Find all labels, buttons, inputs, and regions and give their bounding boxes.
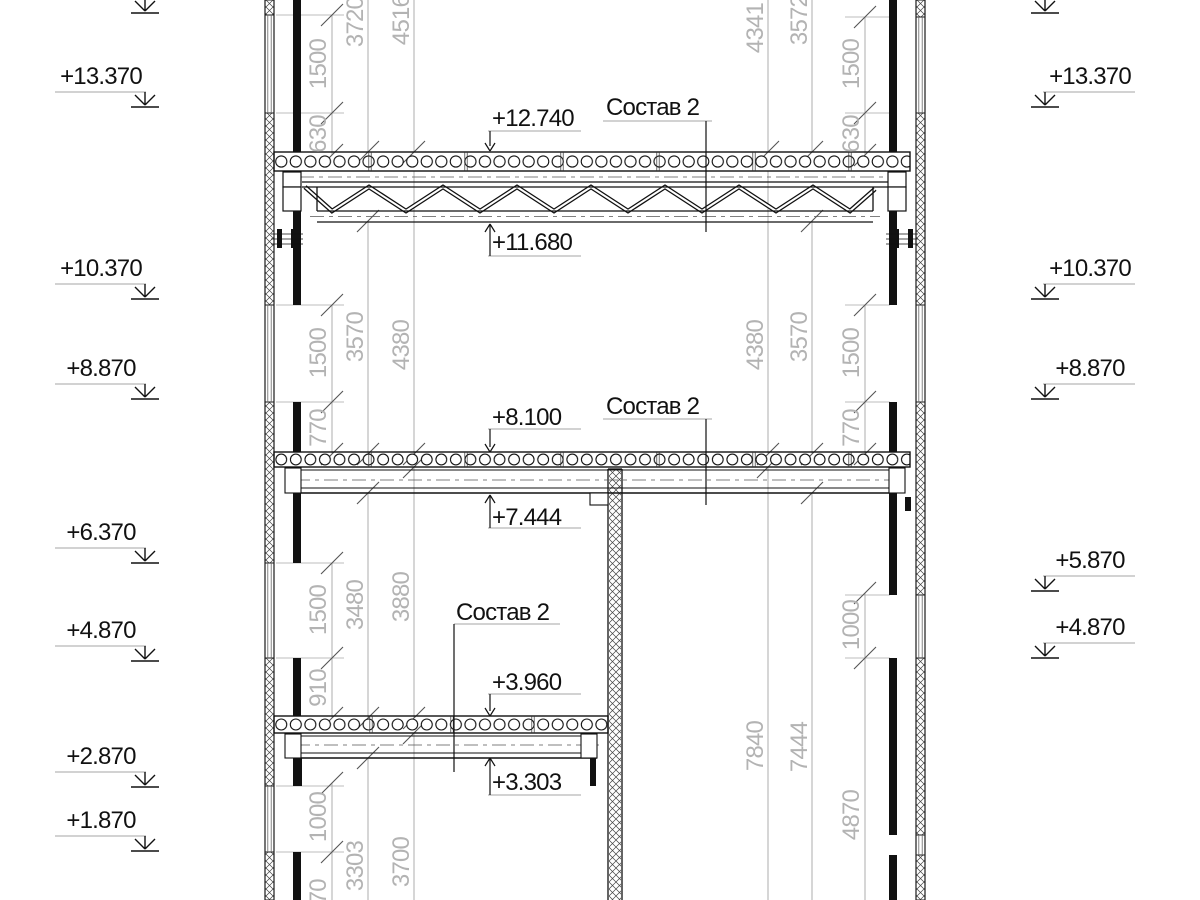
dim-text: 3570 [789,312,811,362]
elevation-mark-right: +10.370 [1044,257,1136,280]
elevation-callout: +12.740 [492,107,602,130]
dim-text: 3720 [345,0,367,47]
elevation-callout: +3.960 [492,671,602,694]
dim-text: 1500 [841,328,863,378]
dim-text: 770 [308,879,330,900]
dim-text: 4380 [745,320,767,370]
elevation-mark-right: +13.370 [1044,65,1136,88]
dim-text: 770 [841,409,863,447]
elevation-mark-left: +13.370 [55,65,147,88]
dim-text: 1000 [308,792,330,842]
elevation-mark-right: +8.870 [1044,357,1136,380]
section-label: Состав 2 [606,96,726,119]
dim-text: 770 [308,409,330,447]
dim-text: 1000 [841,600,863,650]
dim-text: 630 [841,115,863,153]
dim-text: 910 [308,669,330,707]
elevation-mark-left: +6.370 [55,521,147,544]
elevation-mark-left: +8.870 [55,357,147,380]
section-label: Состав 2 [606,395,726,418]
elevation-mark-left: +4.870 [55,619,147,642]
section-drawing-graphics [0,0,1200,900]
dim-text: 3880 [391,572,413,622]
dim-text: 7444 [789,722,811,772]
dim-text: 1500 [308,585,330,635]
dim-text: 1500 [841,39,863,89]
elevation-callout: +3.303 [492,771,602,794]
dim-text: 1500 [308,39,330,89]
dim-text: 4870 [841,790,863,840]
dim-text: 4380 [391,320,413,370]
dim-text: 630 [308,115,330,153]
elevation-callout: +11.680 [492,231,602,254]
dim-text: 3572 [789,0,811,45]
section-label: Состав 2 [456,601,576,624]
elevation-callout: +8.100 [492,406,602,429]
elevation-mark-left: +10.370 [55,257,147,280]
dim-text: 7840 [745,721,767,771]
elevation-mark-left: +2.870 [55,745,147,768]
elevation-callout: +7.444 [492,506,602,529]
dim-text: 3480 [345,580,367,630]
dim-text: 4516 [391,0,413,45]
dim-text: 4341 [745,3,767,53]
dim-text: 3303 [345,841,367,891]
dim-text: 1500 [308,328,330,378]
dim-text: 3570 [345,312,367,362]
dim-text: 3700 [391,837,413,887]
elevation-mark-right: +5.870 [1044,549,1136,572]
elevation-mark-left: +1.870 [55,809,147,832]
drawing-canvas: +13.370 +10.370 +8.870 +6.370 +4.870 +2.… [0,0,1200,900]
elevation-mark-right: +4.870 [1044,616,1136,639]
